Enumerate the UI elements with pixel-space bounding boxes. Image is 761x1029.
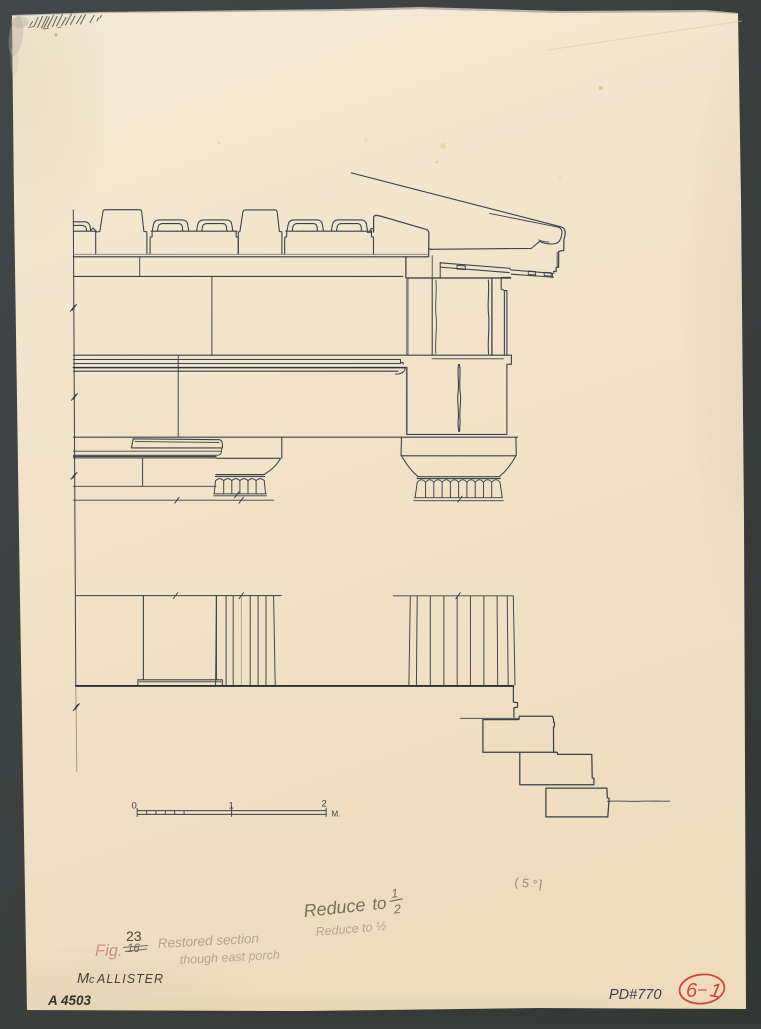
svg-text:Fig.: Fig.	[95, 942, 123, 960]
svg-text:2: 2	[322, 799, 327, 810]
svg-text:A 4503: A 4503	[47, 993, 92, 1008]
svg-text:16: 16	[127, 943, 140, 955]
svg-text:ALLISTER: ALLISTER	[96, 972, 164, 986]
svg-text:M.: M.	[332, 810, 341, 819]
svg-text:6: 6	[686, 980, 698, 1002]
svg-text:PD#770: PD#770	[609, 987, 661, 1003]
svg-text:23: 23	[126, 928, 142, 944]
svg-text:1: 1	[229, 801, 234, 812]
svg-text:1: 1	[391, 886, 399, 901]
svg-text:0: 0	[132, 801, 137, 812]
svg-text:2: 2	[392, 902, 401, 917]
svg-text:to: to	[371, 893, 387, 913]
svg-text:–: –	[698, 981, 707, 998]
svg-text:c: c	[89, 974, 95, 986]
